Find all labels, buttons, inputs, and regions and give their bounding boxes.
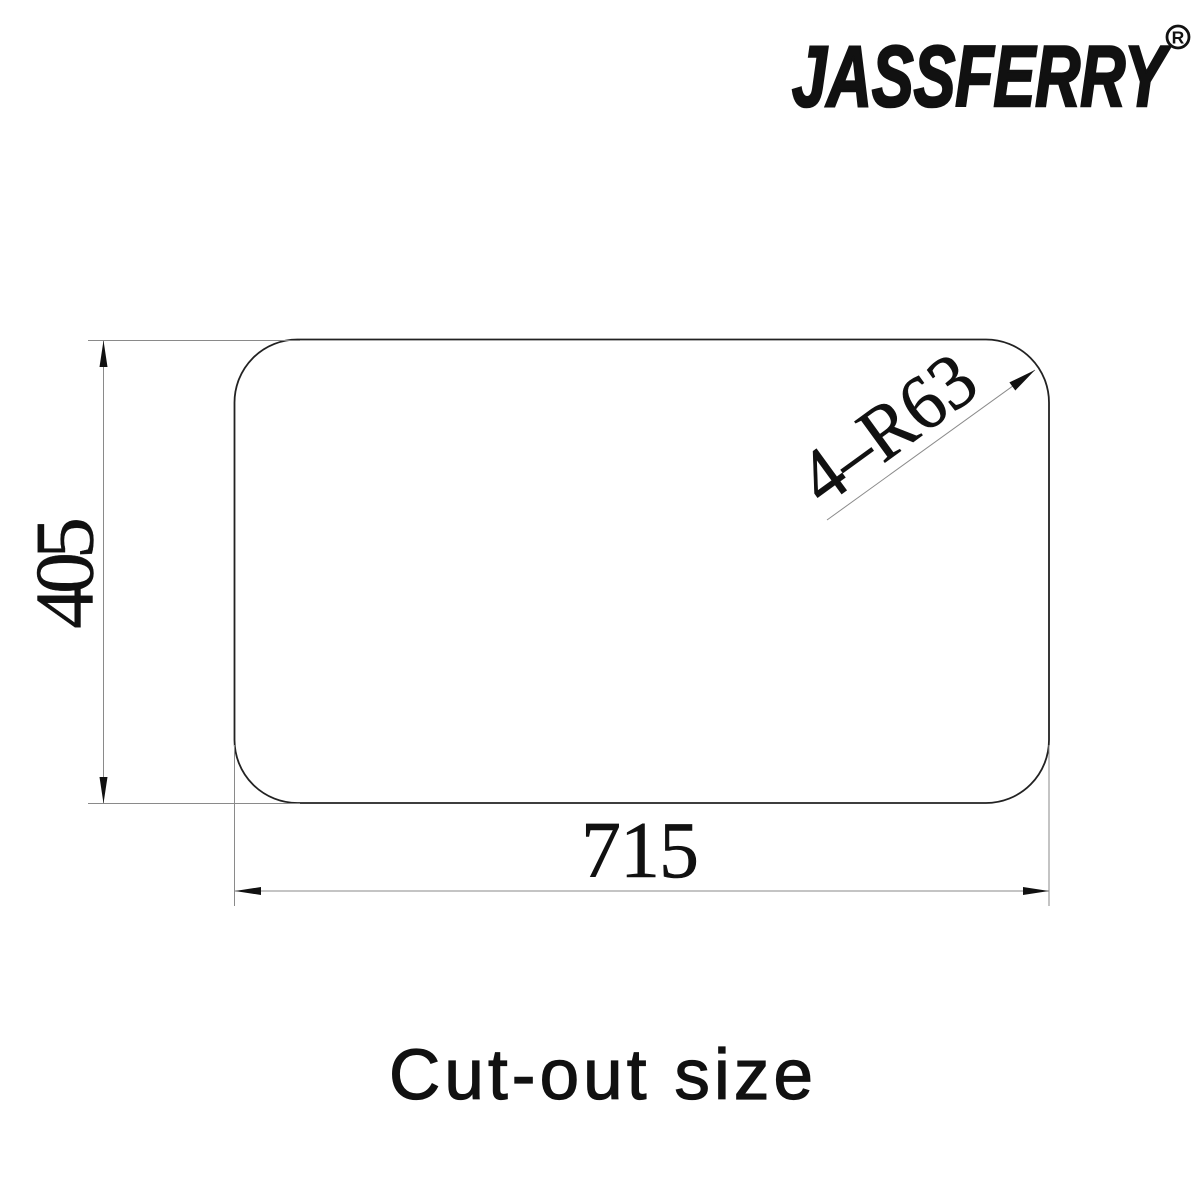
svg-text:JASSFERRY: JASSFERRY bbox=[792, 29, 1171, 125]
svg-text:Cut-out size: Cut-out size bbox=[389, 1036, 813, 1115]
svg-text:715: 715 bbox=[581, 807, 699, 895]
svg-text:R: R bbox=[1172, 27, 1185, 47]
svg-text:405: 405 bbox=[19, 517, 112, 629]
